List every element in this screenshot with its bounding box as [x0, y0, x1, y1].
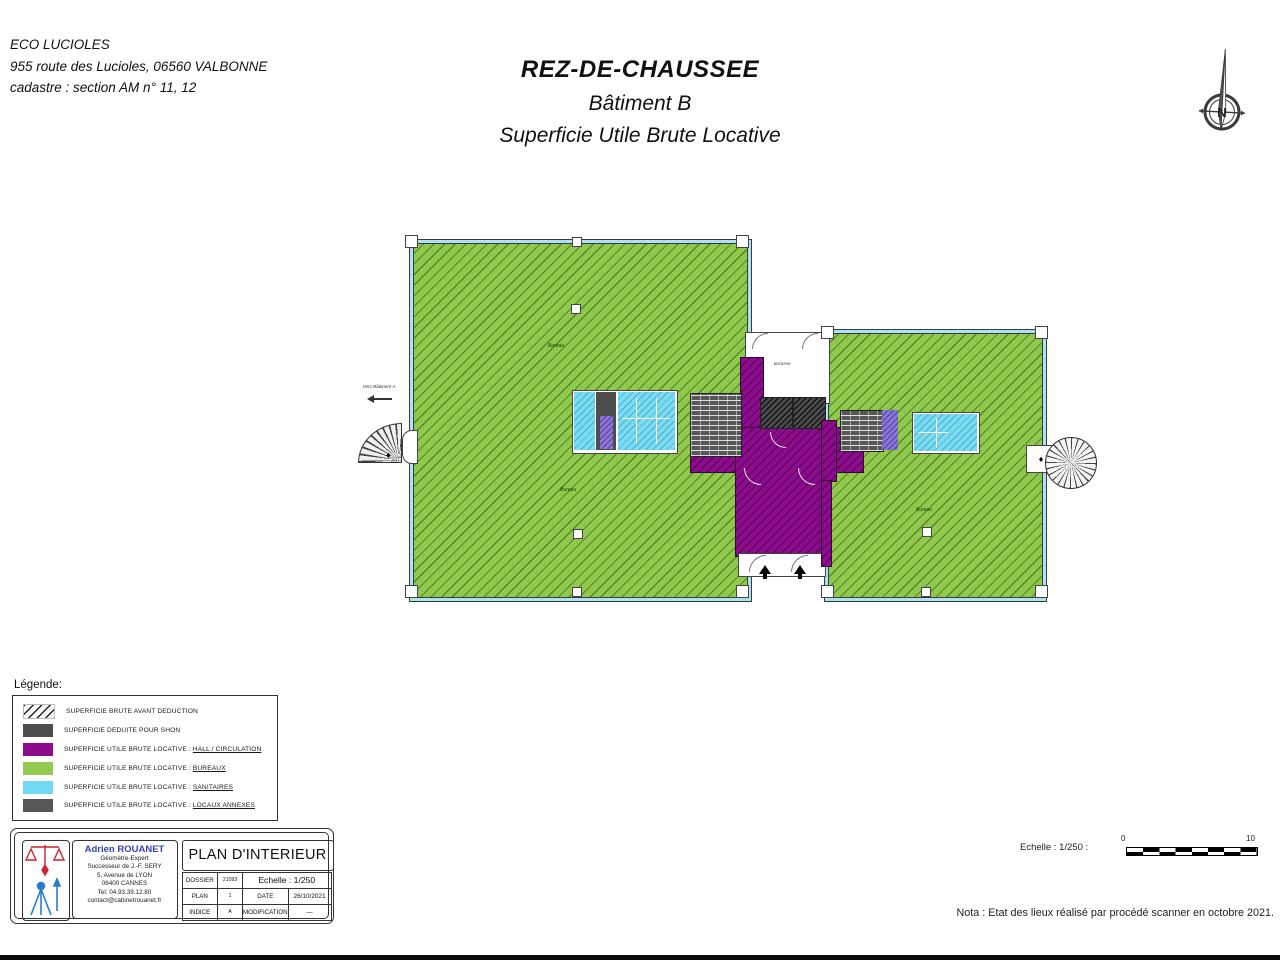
legend-label: SUPERFICIE UTILE BRUTE LOCATIVE : SANITA…: [64, 784, 233, 791]
legend-prefix: SUPERFICIE UTILE BRUTE LOCATIVE :: [64, 746, 193, 753]
door-arc: [744, 468, 761, 485]
project-name: ECO LUCIOLES: [10, 34, 267, 56]
arrow-stem: [763, 574, 767, 579]
page-title: REZ-DE-CHAUSSEE Bâtiment B Superficie Ut…: [380, 56, 900, 148]
swatch-locaux-annexes: [23, 799, 53, 812]
swatch-sanitaires: [23, 781, 53, 794]
arrow-head: [794, 565, 806, 574]
scale-zero-label: 0: [1121, 834, 1125, 843]
dossier-value: 21093: [218, 872, 243, 888]
legend-label: SUPERFICIE DEDUITE POUR SHON: [64, 727, 180, 734]
exterior-spiral-stair: [1045, 437, 1097, 489]
arrow-head: [759, 565, 771, 574]
project-cadastre: cadastre : section AM n° 11, 12: [10, 77, 267, 99]
violet-duct: [882, 410, 898, 450]
legend-prefix: SUPERFICIE UTILE BRUTE LOCATIVE :: [64, 802, 193, 809]
project-address: 955 route des Lucioles, 06560 VALBONNE: [10, 56, 267, 78]
bureau-label: Bureau: [548, 343, 564, 349]
partition: [656, 398, 657, 444]
scales-tripod-icon: [23, 841, 67, 918]
title-block-inner: Adrien ROUANET Géomètre-Expert Successeu…: [14, 832, 329, 919]
column: [405, 585, 418, 598]
legend-sublabel: LOCAUX ANNEXES: [193, 802, 255, 809]
annex-room-1: [760, 397, 793, 429]
column: [1035, 585, 1048, 598]
legend-item: SUPERFICIE UTILE BRUTE LOCATIVE : SANITA…: [13, 781, 277, 794]
legend-label: SUPERFICIE BRUTE AVANT DEDUCTION: [66, 708, 198, 715]
column: [573, 529, 583, 539]
swatch-deduite-shon: [23, 724, 53, 737]
sanitaires-room: [618, 392, 675, 450]
north-compass-icon: N: [1192, 46, 1252, 142]
column: [821, 326, 834, 339]
stair-diamond-marker: ♦: [386, 451, 391, 460]
legend: SUPERFICIE BRUTE AVANT DEDUCTION SUPERFI…: [12, 695, 278, 821]
swatch-hall-circulation: [23, 743, 53, 756]
column: [921, 587, 931, 597]
legend-label: SUPERFICIE UTILE BRUTE LOCATIVE : BUREAU…: [64, 765, 226, 772]
firm-name: Adrien ROUANET: [73, 844, 177, 855]
table-row: PLAN 1 DATE 26/10/2021: [182, 888, 331, 904]
title-block-table: DOSSIER 21093 Echelle : 1/250 PLAN 1 DAT…: [182, 872, 332, 921]
legend-sublabel: SANITAIRES: [193, 784, 233, 791]
scale-bar: [1126, 847, 1258, 856]
sanitaires-room: [574, 392, 595, 450]
bureau-label: Bureau: [916, 507, 932, 513]
floor-plan: terrasse: [350, 225, 1100, 625]
title-block: Adrien ROUANET Géomètre-Expert Successeu…: [10, 828, 334, 924]
entrance-arrow-icon: [794, 565, 806, 579]
legend-item: SUPERFICIE BRUTE AVANT DEDUCTION: [13, 704, 277, 719]
firm-successor: Successeur de J.-F. SERY: [73, 863, 177, 872]
column: [572, 237, 582, 247]
legend-title: Légende:: [14, 679, 62, 691]
legend-item: SUPERFICIE UTILE BRUTE LOCATIVE : BUREAU…: [13, 762, 277, 775]
indice-label: INDICE: [182, 904, 218, 920]
legend-prefix: SUPERFICIE UTILE BRUTE LOCATIVE :: [64, 784, 193, 791]
echelle-cell: Echelle : 1/250: [243, 872, 331, 888]
column: [736, 585, 749, 598]
left-arrow-icon: [350, 395, 408, 403]
legend-item: SUPERFICIE UTILE BRUTE LOCATIVE : HALL /…: [13, 743, 277, 756]
swatch-bureaux: [23, 762, 53, 775]
plan-value: 1: [218, 888, 243, 904]
column: [1035, 326, 1048, 339]
swatch-brute-avant-deduction: [23, 704, 55, 719]
hall-edge-piece: [821, 420, 837, 482]
legend-prefix: SUPERFICIE UTILE BRUTE LOCATIVE :: [64, 765, 193, 772]
arrow-stem: [798, 574, 802, 579]
title-line-3: Superficie Utile Brute Locative: [380, 124, 900, 148]
page-bottom-edge: [0, 955, 1280, 960]
scale-text: Echelle : 1/250 :: [1020, 842, 1088, 853]
arrow-head: [367, 395, 374, 403]
partition: [936, 418, 937, 448]
partition: [918, 432, 948, 433]
column: [405, 235, 418, 248]
arrow-line: [374, 398, 392, 400]
door-arc: [802, 333, 818, 349]
indice-value: A: [218, 904, 243, 920]
project-info: ECO LUCIOLES 955 route des Lucioles, 065…: [10, 34, 267, 99]
partition: [622, 418, 670, 419]
stair-diamond-marker: ♦: [1039, 455, 1044, 464]
left-sanitaires-block: [572, 390, 678, 454]
doc-title: PLAN D'INTERIEUR: [182, 840, 334, 871]
side-door: [402, 430, 418, 464]
table-row: DOSSIER 21093 Echelle : 1/250: [182, 872, 331, 888]
hall-central-column: [735, 427, 829, 557]
firm-info: Adrien ROUANET Géomètre-Expert Successeu…: [72, 840, 178, 919]
column: [736, 235, 749, 248]
date-value: 26/10/2021: [288, 888, 331, 904]
sanitaires-room: [914, 414, 977, 451]
legend-label: SUPERFICIE UTILE BRUTE LOCATIVE : LOCAUX…: [64, 802, 255, 809]
legend-sublabel: HALL / CIRCULATION: [193, 746, 262, 753]
right-sanitaires-block: [912, 412, 980, 454]
plan-label: PLAN: [182, 888, 218, 904]
vers-batiment-a-label: Vers Bâtiment A: [363, 384, 396, 389]
title-line-2: Bâtiment B: [380, 92, 900, 116]
legend-item: SUPERFICIE UTILE BRUTE LOCATIVE : LOCAUX…: [13, 799, 277, 812]
hall-edge-strip: [821, 480, 832, 567]
door-arc: [770, 432, 786, 448]
firm-address1: 5, Avenue de LYON: [73, 872, 177, 881]
terrasse-label: terrasse: [774, 361, 791, 366]
column: [572, 587, 582, 597]
exterior-fan-stair: [358, 423, 402, 463]
firm-tel: Tel: 04.93.39.12.80: [73, 889, 177, 898]
entrance-lobby: [738, 553, 826, 577]
entrance-arrow-icon: [759, 565, 771, 579]
vers-batiment-a: Vers Bâtiment A: [350, 375, 408, 403]
modification-value: —: [288, 904, 331, 920]
dossier-label: DOSSIER: [182, 872, 218, 888]
bureau-label: Bureau: [560, 487, 576, 493]
title-line-1: REZ-DE-CHAUSSEE: [380, 56, 900, 84]
column: [821, 585, 834, 598]
column: [571, 304, 581, 314]
main-staircase: [690, 393, 742, 457]
legend-sublabel: BUREAUX: [193, 765, 226, 772]
violet-duct: [600, 416, 613, 449]
north-label: N: [1217, 105, 1226, 120]
firm-email: contact@cabinetrouanet.fr: [73, 897, 177, 906]
nota-text: Nota : Etat des lieux réalisé par procéd…: [940, 907, 1274, 919]
scale-bar-bottom: [1127, 852, 1257, 856]
firm-address2: 06400 CANNES: [73, 880, 177, 889]
firm-role: Géomètre-Expert: [73, 855, 177, 864]
modification-label: MODIFICATION: [243, 904, 289, 920]
partition: [636, 398, 637, 444]
right-staircase: [840, 410, 884, 452]
date-label: DATE: [243, 888, 289, 904]
door-arc: [752, 333, 768, 349]
column: [922, 527, 932, 537]
scale-ten-label: 10: [1246, 834, 1255, 843]
legend-label: SUPERFICIE UTILE BRUTE LOCATIVE : HALL /…: [64, 746, 261, 753]
door-arc: [798, 468, 815, 485]
legend-item: SUPERFICIE DEDUITE POUR SHON: [13, 724, 277, 737]
surveyor-logo: [22, 840, 70, 921]
table-row: INDICE A MODIFICATION —: [182, 904, 331, 920]
